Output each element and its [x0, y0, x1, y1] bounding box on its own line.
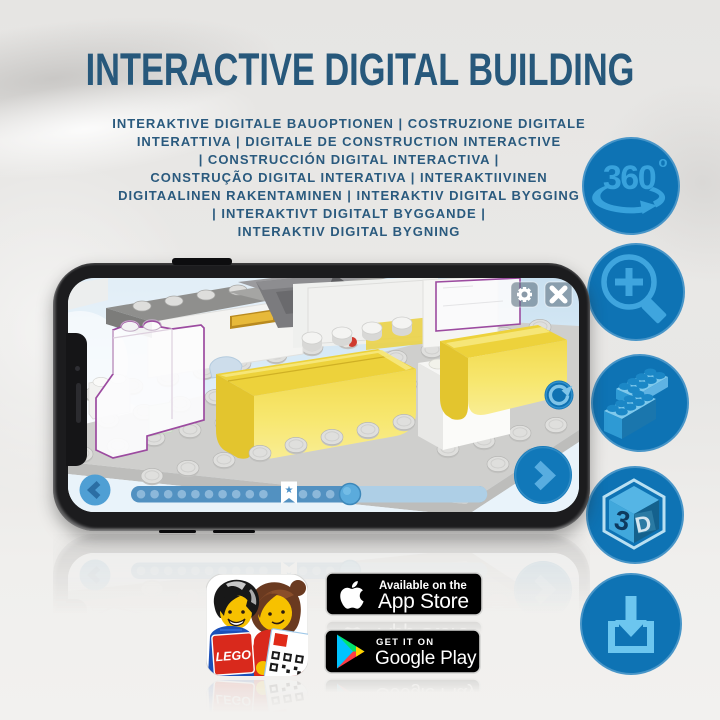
svg-text:GET IT ON: GET IT ON: [376, 637, 434, 648]
svg-text:App Store: App Store: [378, 590, 469, 613]
svg-text:LEGO: LEGO: [215, 648, 252, 664]
svg-text:Google Play: Google Play: [375, 648, 477, 669]
svg-text:360: 360: [603, 159, 656, 197]
svg-text:o: o: [658, 154, 667, 171]
svg-text:★: ★: [285, 485, 294, 496]
